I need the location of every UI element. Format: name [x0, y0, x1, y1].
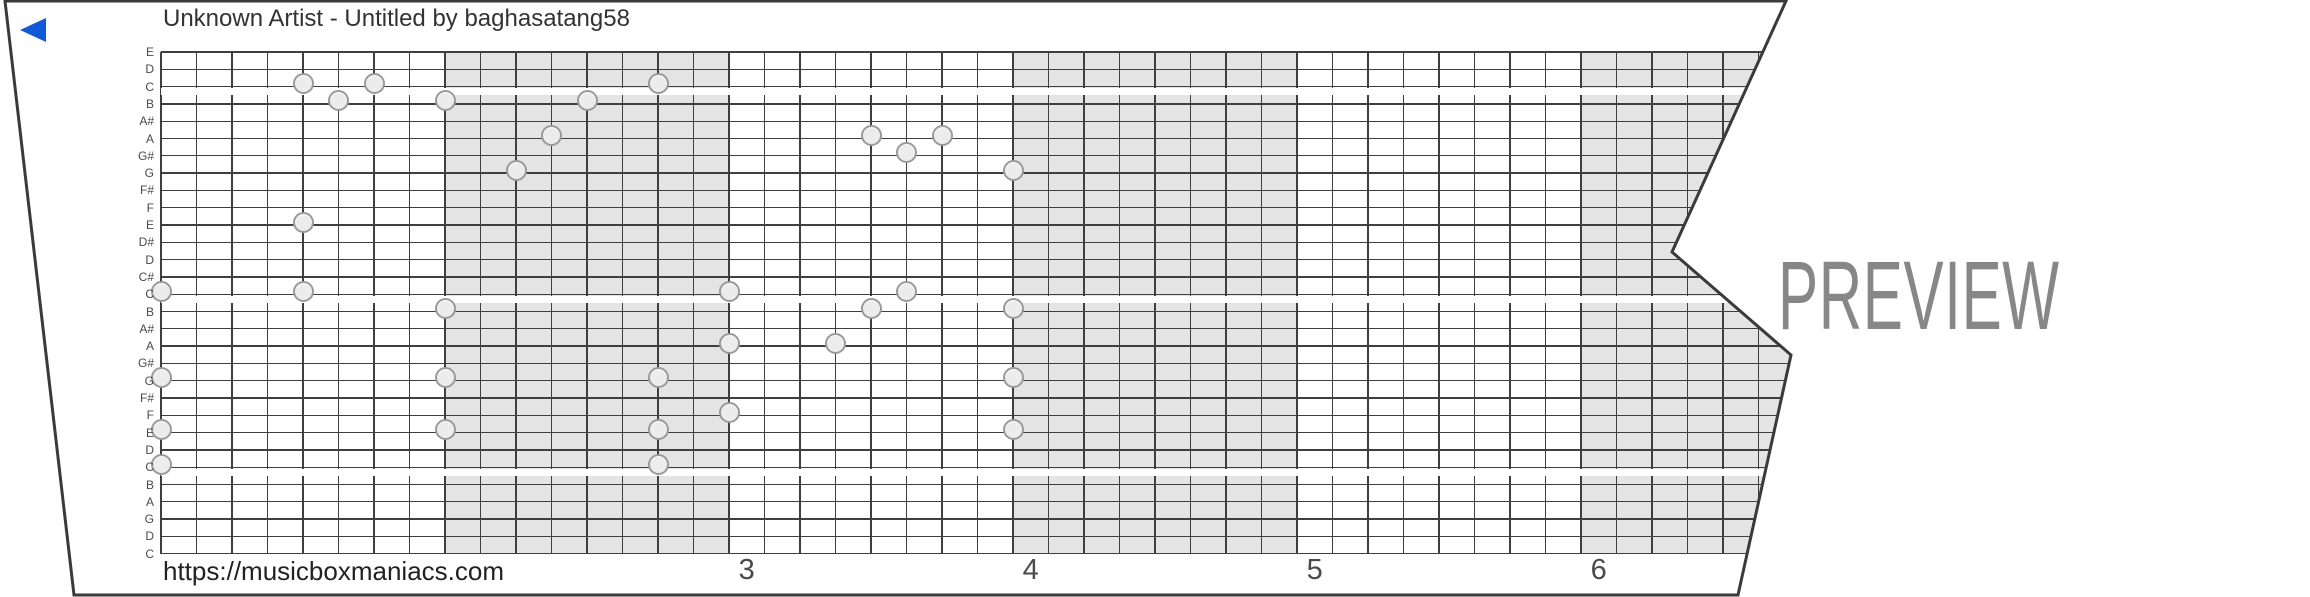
note-circle	[435, 419, 456, 440]
pitch-line	[161, 467, 1800, 468]
pitch-label: A#	[96, 322, 154, 336]
beat-line	[1083, 52, 1084, 554]
beat-line	[977, 52, 978, 554]
beat-line	[267, 52, 268, 554]
note-circle	[293, 281, 314, 302]
pitch-label: G	[96, 512, 154, 526]
note-circle	[648, 367, 669, 388]
beat-line	[1651, 52, 1652, 554]
pitch-line	[161, 415, 1800, 416]
pitch-label: G	[96, 374, 154, 388]
preview-watermark: PREVIEW	[1778, 240, 2060, 352]
pitch-line	[161, 553, 1800, 554]
pitch-line	[161, 242, 1800, 243]
beat-line	[1722, 52, 1723, 554]
note-circle	[932, 125, 953, 146]
pitch-line	[161, 190, 1800, 191]
beat-line	[231, 52, 232, 554]
note-circle	[1003, 160, 1024, 181]
pitch-label: G#	[96, 356, 154, 370]
beat-line	[622, 52, 623, 554]
octave-stripe	[161, 88, 1800, 95]
beat-line	[835, 52, 836, 554]
pitch-line	[161, 51, 1800, 52]
beat-line	[1261, 52, 1262, 554]
note-circle	[364, 73, 385, 94]
pitch-label: A#	[96, 114, 154, 128]
music-box-strip-preview: EDCBA#AG#GF#FED#DC#CBA#AG#GF#FEDCBAGDC 3…	[0, 0, 2310, 597]
pitch-line	[161, 259, 1800, 260]
beat-line	[1580, 52, 1581, 554]
note-circle	[435, 367, 456, 388]
pitch-line	[161, 449, 1800, 450]
pitch-line	[161, 86, 1800, 87]
pitch-line	[161, 536, 1800, 537]
note-circle	[719, 333, 740, 354]
beat-line	[338, 52, 339, 554]
note-circle	[1003, 367, 1024, 388]
pitch-label: D	[96, 443, 154, 457]
pitch-label: B	[96, 305, 154, 319]
pitch-label: C	[96, 287, 154, 301]
pitch-label: C#	[96, 270, 154, 284]
note-circle	[293, 73, 314, 94]
pitch-label: E	[96, 45, 154, 59]
pitch-line	[161, 138, 1800, 139]
measure-number: 6	[1577, 554, 1621, 586]
pitch-label: C	[96, 547, 154, 561]
beat-line	[1509, 52, 1510, 554]
note-circle	[435, 90, 456, 111]
pitch-label: C	[96, 460, 154, 474]
pitch-line	[161, 328, 1800, 329]
pitch-label: F#	[96, 391, 154, 405]
pitch-label: D#	[96, 235, 154, 249]
pitch-label: D	[96, 62, 154, 76]
beat-line	[728, 52, 729, 554]
note-circle	[648, 454, 669, 475]
note-circle	[648, 73, 669, 94]
note-circle	[896, 142, 917, 163]
pitch-line	[161, 294, 1800, 295]
note-circle	[435, 298, 456, 319]
pitch-line	[161, 121, 1800, 122]
note-circle	[719, 402, 740, 423]
beat-line	[657, 52, 658, 554]
beat-line	[302, 52, 303, 554]
pitch-line	[161, 103, 1800, 104]
pitch-line	[161, 363, 1800, 364]
note-circle	[861, 125, 882, 146]
pitch-line	[161, 224, 1800, 225]
measure-number: 5	[1293, 554, 1337, 586]
pitch-line	[161, 172, 1800, 173]
note-circle	[861, 298, 882, 319]
pitch-label: E	[96, 218, 154, 232]
note-circle	[328, 90, 349, 111]
beat-line	[1332, 52, 1333, 554]
pitch-line	[161, 484, 1800, 485]
beat-line	[764, 52, 765, 554]
note-circle	[648, 419, 669, 440]
beat-line	[693, 52, 694, 554]
beat-line	[1687, 52, 1688, 554]
octave-stripe	[161, 469, 1800, 476]
beat-line	[1119, 52, 1120, 554]
pitch-line	[161, 518, 1800, 519]
beat-line	[586, 52, 587, 554]
pitch-label: G#	[96, 149, 154, 163]
pitch-label: F#	[96, 183, 154, 197]
beat-line	[1438, 52, 1439, 554]
beat-line	[1758, 52, 1759, 554]
beat-line	[373, 52, 374, 554]
beat-line	[1190, 52, 1191, 554]
pitch-line	[161, 311, 1800, 312]
beat-line	[409, 52, 410, 554]
note-circle	[825, 333, 846, 354]
beat-line	[1545, 52, 1546, 554]
pitch-label: F	[96, 201, 154, 215]
pitch-label: A	[96, 495, 154, 509]
beat-line	[1048, 52, 1049, 554]
pitch-label: A	[96, 339, 154, 353]
beat-line	[906, 52, 907, 554]
beat-line	[1154, 52, 1155, 554]
pitch-line	[161, 69, 1800, 70]
pitch-label: E	[96, 426, 154, 440]
measure-number: 4	[1009, 554, 1053, 586]
note-circle	[541, 125, 562, 146]
pitch-line	[161, 276, 1800, 277]
note-circle	[1003, 419, 1024, 440]
beat-line	[160, 52, 161, 554]
beat-line	[1296, 52, 1297, 554]
pitch-line	[161, 501, 1800, 502]
octave-stripe	[161, 296, 1800, 303]
pitch-line	[161, 380, 1800, 381]
measure-number: 3	[725, 554, 769, 586]
pitch-line	[161, 207, 1800, 208]
beat-line	[1367, 52, 1368, 554]
beat-line	[1225, 52, 1226, 554]
pitch-label: D	[96, 253, 154, 267]
beat-line	[1616, 52, 1617, 554]
song-title: Unknown Artist - Untitled by baghasatang…	[163, 5, 630, 33]
pitch-label: A	[96, 132, 154, 146]
pitch-label: B	[96, 478, 154, 492]
pitch-label: F	[96, 408, 154, 422]
note-circle	[719, 281, 740, 302]
pitch-line	[161, 397, 1800, 398]
beat-line	[196, 52, 197, 554]
site-url: https://musicboxmaniacs.com	[163, 556, 504, 587]
pitch-label: B	[96, 97, 154, 111]
beat-line	[799, 52, 800, 554]
note-circle	[293, 212, 314, 233]
pitch-label: C	[96, 80, 154, 94]
beat-line	[515, 52, 516, 554]
note-circle	[896, 281, 917, 302]
beat-line	[480, 52, 481, 554]
note-circle	[577, 90, 598, 111]
play-icon[interactable]	[20, 18, 46, 42]
pitch-line	[161, 155, 1800, 156]
beat-line	[1474, 52, 1475, 554]
pitch-label: D	[96, 529, 154, 543]
pitch-line	[161, 345, 1800, 346]
pitch-line	[161, 432, 1800, 433]
note-circle	[506, 160, 527, 181]
beat-line	[1403, 52, 1404, 554]
pitch-label: G	[96, 166, 154, 180]
note-circle	[1003, 298, 1024, 319]
